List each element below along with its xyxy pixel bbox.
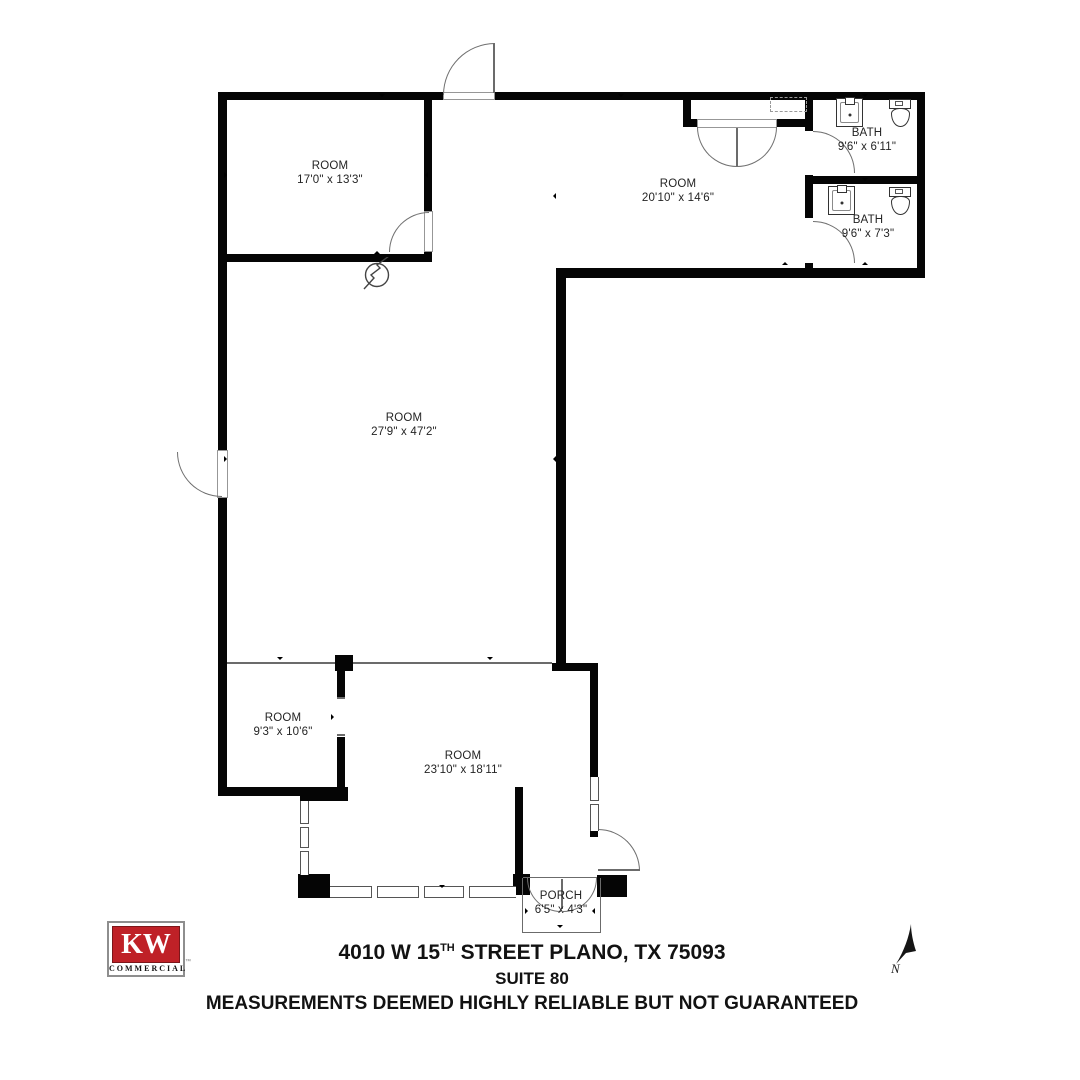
wall-room9-bottom-block [300, 787, 348, 801]
floor-boundary-line-right [353, 662, 552, 664]
address-prefix: 4010 W 15 [339, 941, 441, 964]
address-suffix: STREET PLANO, TX 75093 [455, 941, 726, 964]
dimension-tick [487, 657, 493, 660]
dimension-tick [553, 193, 556, 199]
side-exit-door-swing-arc [598, 829, 640, 871]
room-label-main: ROOM 27'9" x 47'2" [324, 412, 484, 439]
room-name: ROOM [250, 160, 410, 174]
room-name: ROOM [324, 412, 484, 426]
room-name: ROOM [383, 750, 543, 764]
wall-room1-right-upper [424, 92, 432, 211]
front-door-swing-arc [443, 43, 495, 95]
window-bottom-mullion-2 [418, 886, 425, 898]
wall-top-left [218, 92, 443, 100]
room-label-bottom-right: ROOM 23'10" x 18'11" [383, 750, 543, 777]
electrical-symbol-icon [360, 257, 394, 293]
dimension-tick [379, 94, 385, 97]
window-bottom-mullion-1 [371, 886, 378, 898]
room-label-top-right: ROOM 20'10" x 14'6" [598, 178, 758, 205]
suite-line: SUITE 80 [0, 969, 1064, 989]
dimension-tick [782, 262, 788, 265]
closet-door-arc-right [737, 127, 777, 167]
room-dims: 27'9" x 47'2" [324, 426, 484, 440]
closet-shelf-dashed [770, 97, 807, 112]
room-name: BATH [808, 214, 928, 228]
room-name: BATH [807, 127, 927, 141]
sink-icon [828, 186, 855, 215]
wall-room1-bottom [218, 254, 432, 262]
dimension-tick [277, 657, 283, 660]
window-bottom-mullion-3 [463, 886, 470, 898]
opening-jamb-top [337, 697, 345, 699]
room-name: PORCH [501, 890, 621, 904]
wall-left-outer [218, 92, 227, 795]
dimension-tick [862, 94, 868, 97]
wall-porch-left [515, 787, 523, 878]
window-left-mullion-1 [300, 823, 309, 828]
wall-room23-right [590, 663, 598, 777]
room-dims: 6'5" x 4'3" [501, 904, 621, 918]
room-label-bottom-left: ROOM 9'3" x 10'6" [203, 712, 363, 739]
dimension-tick [439, 885, 445, 888]
window-left-mullion-2 [300, 847, 309, 852]
porch-outline-bottom [522, 932, 601, 933]
wall-room23-right-stub [590, 831, 598, 837]
window-right-mullion [590, 800, 599, 805]
room-name: ROOM [598, 178, 758, 192]
closet-door-arc-left [697, 127, 737, 167]
dimension-tick [553, 456, 556, 462]
room-label-top-left: ROOM 17'0" x 13'3" [250, 160, 410, 187]
toilet-icon [889, 187, 911, 217]
disclaimer-line: MEASUREMENTS DEEMED HIGHLY RELIABLE BUT … [0, 993, 1064, 1015]
room-dims: 9'6" x 7'3" [808, 228, 928, 242]
closet-door-center-leaf [736, 128, 738, 166]
dimension-tick [862, 178, 868, 181]
room-label-porch: PORCH 6'5" x 4'3" [501, 890, 621, 917]
wall-post [335, 655, 353, 671]
dimension-tick [557, 925, 563, 928]
room-label-bath-2: BATH 9'6" x 7'3" [808, 214, 928, 241]
mainroom-door-swing-arc [177, 452, 222, 497]
room-label-bath-1: BATH 9'6" x 6'11" [807, 127, 927, 154]
room-dims: 17'0" x 13'3" [250, 174, 410, 188]
dimension-tick [374, 251, 380, 254]
side-exit-door-leaf [598, 869, 640, 871]
room-dims: 9'6" x 6'11" [807, 141, 927, 155]
room-name: ROOM [203, 712, 363, 726]
wall-closet-band-left [683, 119, 697, 127]
toilet-icon [889, 99, 911, 129]
wall-bath-left-2 [805, 175, 813, 218]
wall-room9-bottom [218, 787, 312, 796]
window-left-wall [300, 801, 309, 875]
room1-door-swing-arc [389, 212, 429, 252]
wall-mainroom-right [556, 268, 566, 671]
dimension-tick [862, 262, 868, 265]
address-ordinal: TH [440, 942, 455, 954]
address-line: 4010 W 15TH STREET PLANO, TX 75093 [0, 941, 1064, 965]
dimension-tick [224, 456, 227, 462]
wall-right-outer [917, 92, 925, 278]
floor-boundary-line-left [227, 662, 335, 664]
wall-corner-block-sw [298, 874, 330, 898]
wall-room9-right-lower [337, 737, 345, 787]
dimension-tick [425, 172, 428, 178]
room-dims: 20'10" x 14'6" [598, 192, 758, 206]
room-dims: 9'3" x 10'6" [203, 726, 363, 740]
wall-baths-bottom [556, 268, 925, 278]
sink-icon [836, 98, 863, 127]
floor-plan-page: ROOM 17'0" x 13'3" ROOM 20'10" x 14'6" B… [0, 0, 1080, 1080]
dimension-tick [618, 94, 624, 97]
dimension-tick [224, 172, 227, 178]
room-dims: 23'10" x 18'11" [383, 764, 543, 778]
